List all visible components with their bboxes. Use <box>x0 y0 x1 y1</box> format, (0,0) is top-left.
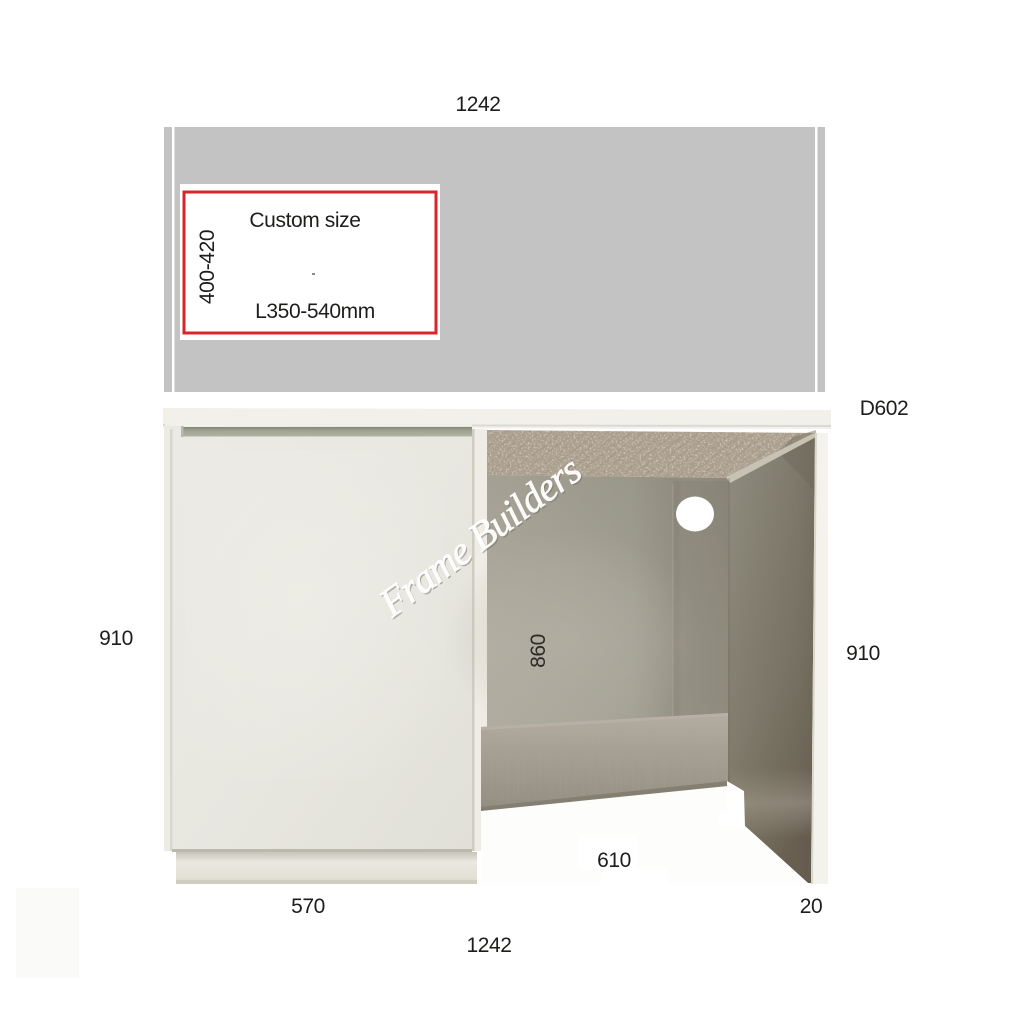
svg-text:570: 570 <box>291 895 325 918</box>
svg-text:20: 20 <box>800 895 823 918</box>
svg-text:D602: D602 <box>860 397 909 420</box>
svg-text:1242: 1242 <box>466 934 511 957</box>
svg-text:860: 860 <box>527 634 550 668</box>
svg-text:Custom size: Custom size <box>249 209 360 232</box>
svg-text:400-420: 400-420 <box>196 230 219 304</box>
svg-text:610: 610 <box>597 849 631 872</box>
svg-text:910: 910 <box>99 627 133 650</box>
svg-text:910: 910 <box>846 642 880 665</box>
svg-text:L350-540mm: L350-540mm <box>255 300 375 323</box>
svg-text:1242: 1242 <box>455 93 500 116</box>
